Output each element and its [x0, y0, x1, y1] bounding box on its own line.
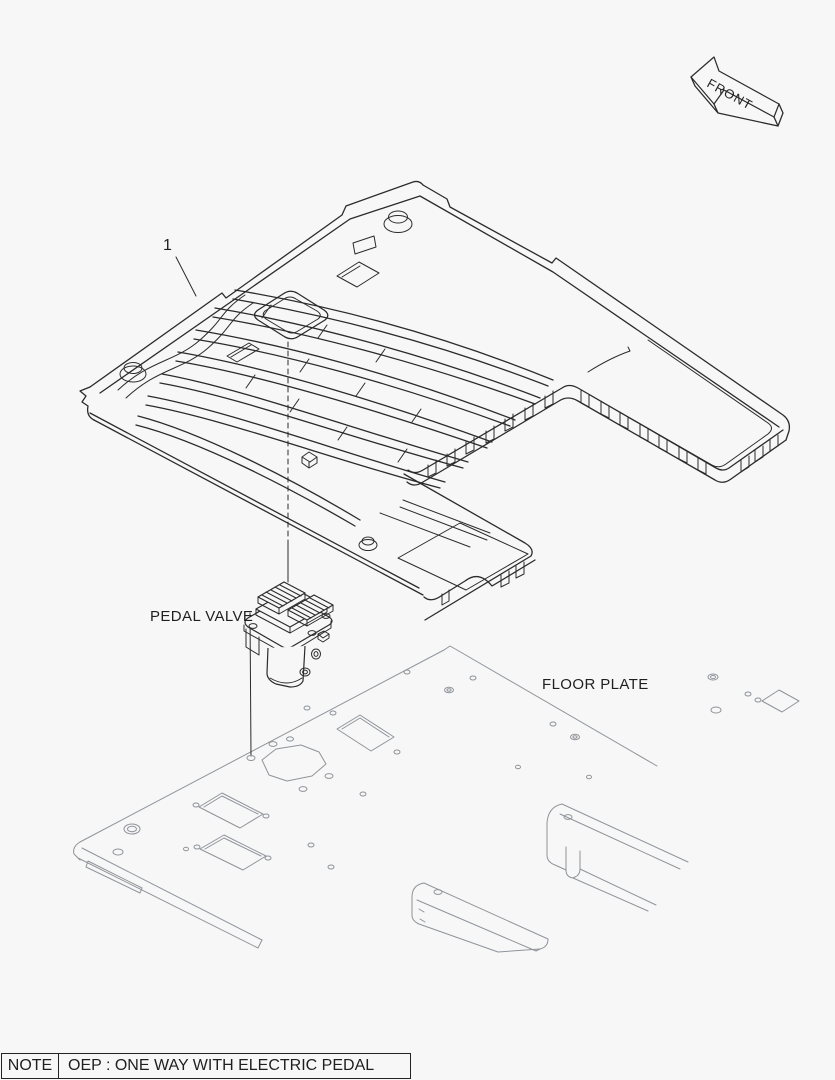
label-floor-plate: FLOOR PLATE [542, 676, 649, 693]
floor-plate-drawing [74, 646, 799, 952]
note-box: NOTE OEP : ONE WAY WITH ELECTRIC PEDAL [1, 1053, 411, 1079]
callout-1-leader [176, 257, 196, 296]
exploded-view-drawing: FRONT [0, 0, 835, 1080]
note-title: NOTE [2, 1054, 59, 1078]
note-text: OEP : ONE WAY WITH ELECTRIC PEDAL [59, 1054, 410, 1078]
callout-1: 1 [163, 237, 172, 255]
diagram-page: FRONT 1 PEDAL VALVE FLOOR PLATE NOTE OEP… [0, 0, 835, 1080]
label-pedal-valve: PEDAL VALVE [150, 608, 253, 625]
floor-mat-drawing [80, 181, 789, 620]
pedal-valve-drawing [244, 582, 333, 687]
front-arrow: FRONT [691, 57, 783, 126]
